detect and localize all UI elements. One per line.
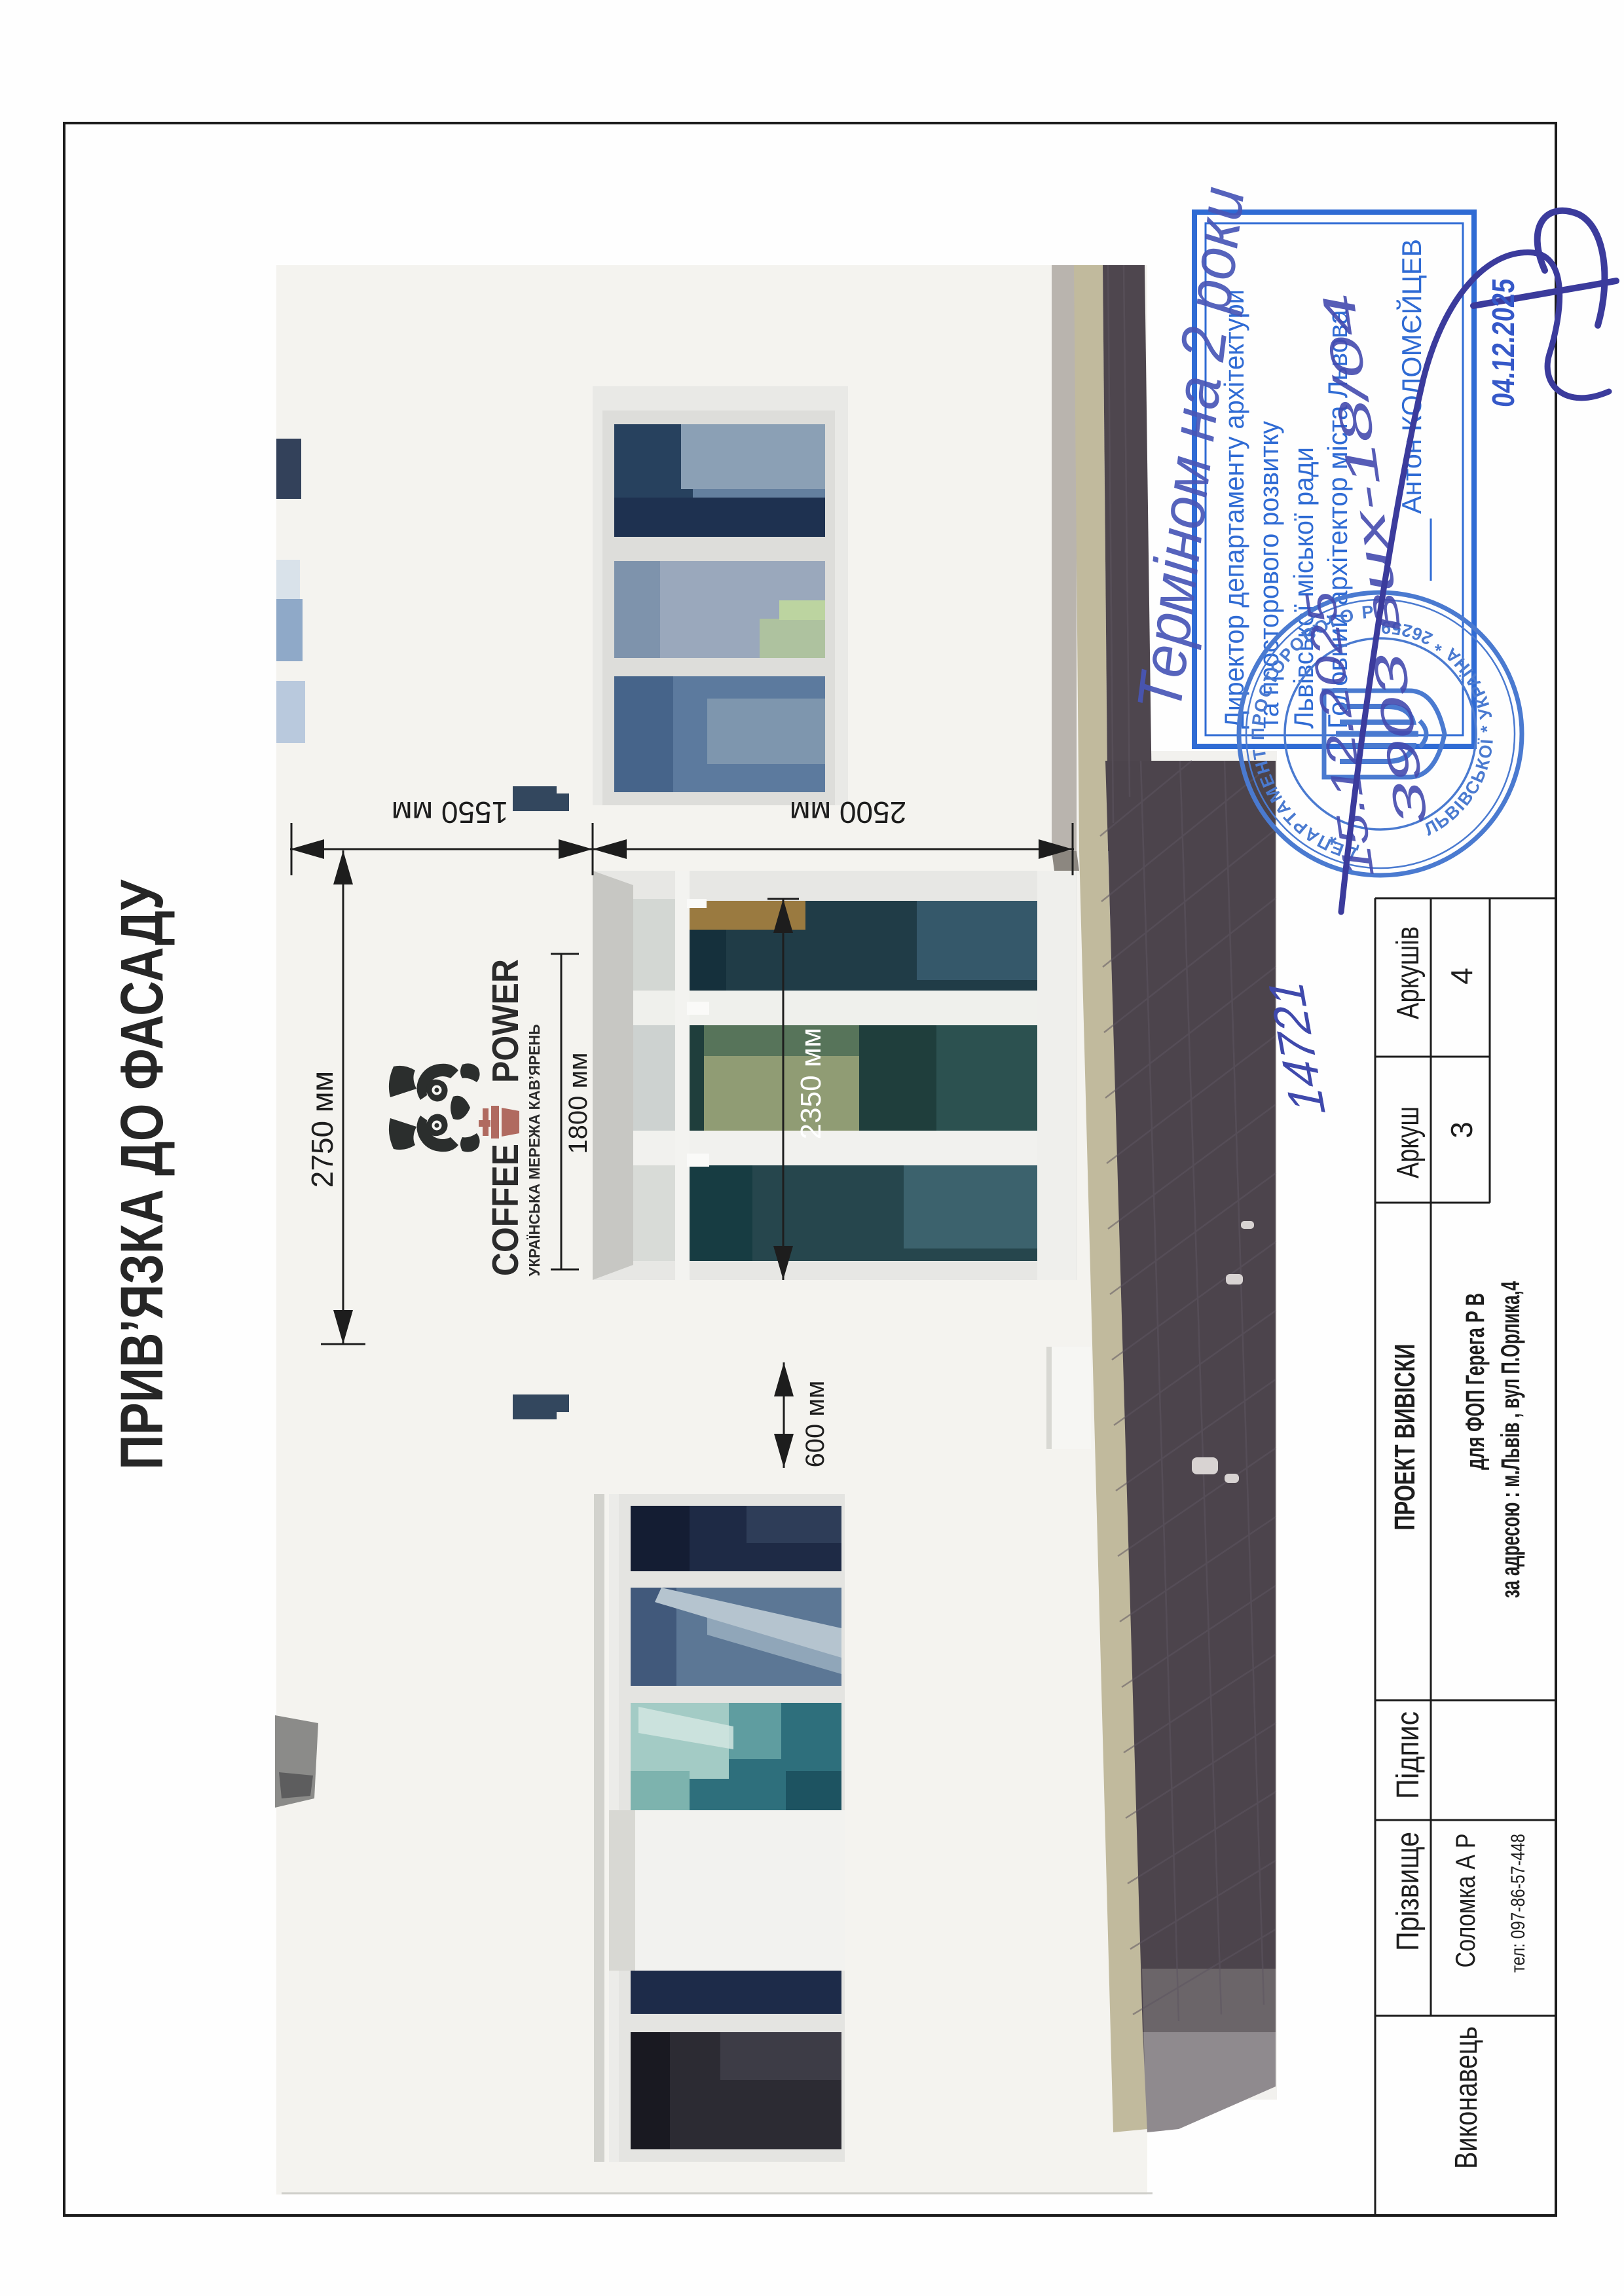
svg-text:за адресою : м.Львів , вул П.О: за адресою : м.Львів , вул П.Орлика,4 xyxy=(1496,1281,1525,1598)
svg-text:3: 3 xyxy=(1445,1121,1479,1139)
svg-text:600 мм: 600 мм xyxy=(801,1381,830,1468)
svg-text:Прізвище: Прізвище xyxy=(1391,1832,1426,1951)
svg-text:04.12.2025: 04.12.2025 xyxy=(1486,277,1521,409)
svg-text:ПРОЕКТ ВИВІСКИ: ПРОЕКТ ВИВІСКИ xyxy=(1389,1344,1421,1531)
svg-text:1800 мм: 1800 мм xyxy=(564,1052,593,1154)
svg-text:2350 мм: 2350 мм xyxy=(795,1028,827,1140)
svg-text:Підпис: Підпис xyxy=(1391,1711,1426,1799)
svg-text:Соломка А Р: Соломка А Р xyxy=(1450,1834,1481,1968)
svg-text:POWER: POWER xyxy=(485,959,526,1083)
svg-text:для ФОП Герега Р В: для ФОП Герега Р В xyxy=(1461,1293,1490,1470)
svg-text:2750 мм: 2750 мм xyxy=(305,1071,339,1188)
svg-text:Аркуш: Аркуш xyxy=(1391,1106,1426,1178)
svg-text:1550 мм: 1550 мм xyxy=(392,795,508,829)
svg-text:Виконавець: Виконавець xyxy=(1449,2026,1484,2169)
svg-text:COFFEE: COFFEE xyxy=(485,1144,526,1276)
svg-text:УКРАЇНСЬКА МЕРЕЖА КАВ’ЯРЕНЬ: УКРАЇНСЬКА МЕРЕЖА КАВ’ЯРЕНЬ xyxy=(526,1025,543,1277)
svg-text:2500 мм: 2500 мм xyxy=(790,795,906,829)
svg-text:тел: 097-86-57-448: тел: 097-86-57-448 xyxy=(1507,1834,1529,1973)
svg-text:4: 4 xyxy=(1445,968,1479,985)
svg-text:Аркушів: Аркушів xyxy=(1391,926,1426,1019)
svg-text:ПРИВ’ЯЗКА ДО ФАСАДУ: ПРИВ’ЯЗКА ДО ФАСАДУ xyxy=(109,879,175,1470)
